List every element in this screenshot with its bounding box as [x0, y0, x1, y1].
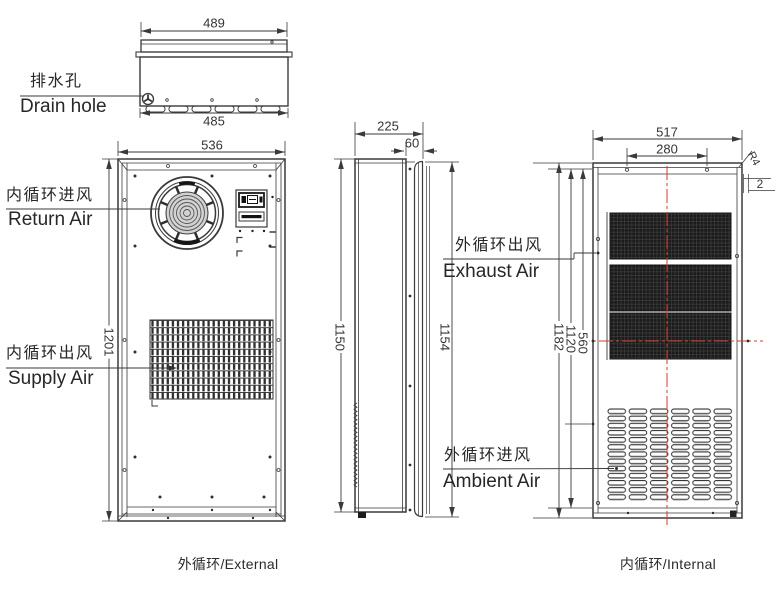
dim-side-total-height: 1154 — [439, 321, 452, 353]
supply-air-grille — [150, 320, 273, 399]
drain-hole-icon — [143, 94, 154, 105]
dim-internal-center-height: 560 — [577, 330, 590, 356]
dim-top-view-base: 485 — [203, 115, 225, 128]
exhaust-air-label-en: Exhaust Air — [443, 262, 539, 281]
drain-hole-label-cn: 排水孔 — [30, 74, 83, 90]
dim-front-width: 536 — [201, 139, 223, 152]
supply-air-label-cn: 内循环出风 — [6, 346, 94, 362]
drain-hole-label-en: Drain hole — [20, 97, 107, 116]
return-air-fan-grille — [151, 177, 223, 249]
dim-internal-hole-span: 280 — [656, 143, 678, 156]
ambient-air-label-cn: 外循环进风 — [444, 448, 532, 464]
ambient-air-label-en: Ambient Air — [443, 472, 540, 491]
dim-top-view-width: 489 — [203, 17, 225, 30]
technical-drawing-page: 489 485 排水孔 Drain hole 536 1201 内循环进风 Re… — [0, 0, 780, 596]
exhaust-mesh-panels — [607, 212, 731, 360]
exhaust-air-label-cn: 外循环出风 — [455, 238, 543, 254]
return-air-label-en: Return Air — [8, 210, 92, 229]
control-panel — [236, 190, 276, 257]
dim-front-height: 1201 — [103, 326, 116, 359]
side-view-drawing — [334, 122, 459, 518]
return-air-label-cn: 内循环进风 — [6, 188, 94, 204]
dim-side-body-height: 1150 — [334, 321, 347, 353]
external-view-caption: 外循环/External — [178, 557, 279, 571]
ambient-air-louvers — [608, 408, 735, 501]
dim-side-flange: 60 — [405, 137, 419, 150]
dim-panel-offset: 2 — [757, 178, 764, 190]
supply-air-label-en: Supply Air — [8, 369, 94, 388]
dim-internal-width: 517 — [656, 126, 678, 139]
internal-view-drawing — [443, 130, 775, 527]
engineering-drawing — [0, 0, 780, 596]
ambient-air-leader-line — [443, 469, 614, 470]
internal-view-caption: 内循环/Internal — [620, 557, 716, 571]
dim-side-depth: 225 — [377, 120, 399, 133]
